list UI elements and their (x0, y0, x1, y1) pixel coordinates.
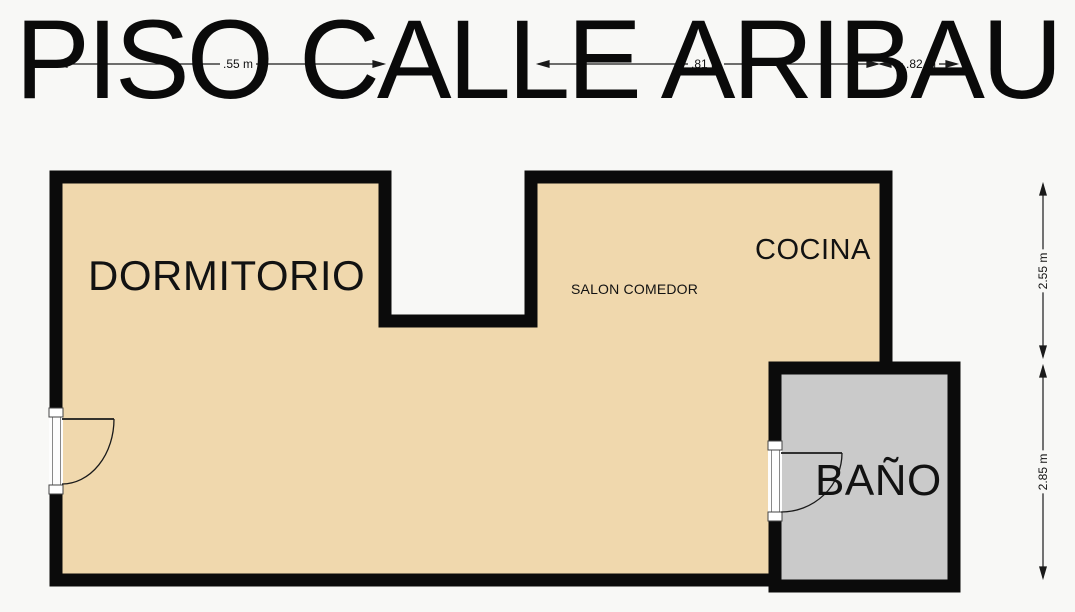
bathroom-door-jamb (768, 512, 782, 521)
arrowhead-up-icon (1040, 184, 1046, 195)
arrowhead-up-icon (1040, 366, 1046, 377)
page-title: PISO CALLE ARIBAU (0, 4, 1075, 116)
room-label-dormitorio: DORMITORIO (88, 252, 365, 300)
room-label-cocina: COCINA (755, 234, 871, 267)
floor-plan-canvas: PISO CALLE ARIBAU DORMITORIO SALON COMED… (0, 0, 1075, 612)
arrowhead-down-icon (1040, 346, 1046, 357)
room-label-salon-comedor: SALON COMEDOR (571, 281, 698, 297)
entry-door-jamb (49, 485, 63, 494)
dimension-label-right-lower: 2.85 m (1036, 451, 1050, 494)
dimension-label-right-upper: 2.55 m (1036, 250, 1050, 293)
room-label-bano: BAÑO (815, 456, 942, 506)
bathroom-door-jamb (768, 441, 782, 450)
arrowhead-down-icon (1040, 567, 1046, 578)
entry-door-jamb (49, 408, 63, 417)
